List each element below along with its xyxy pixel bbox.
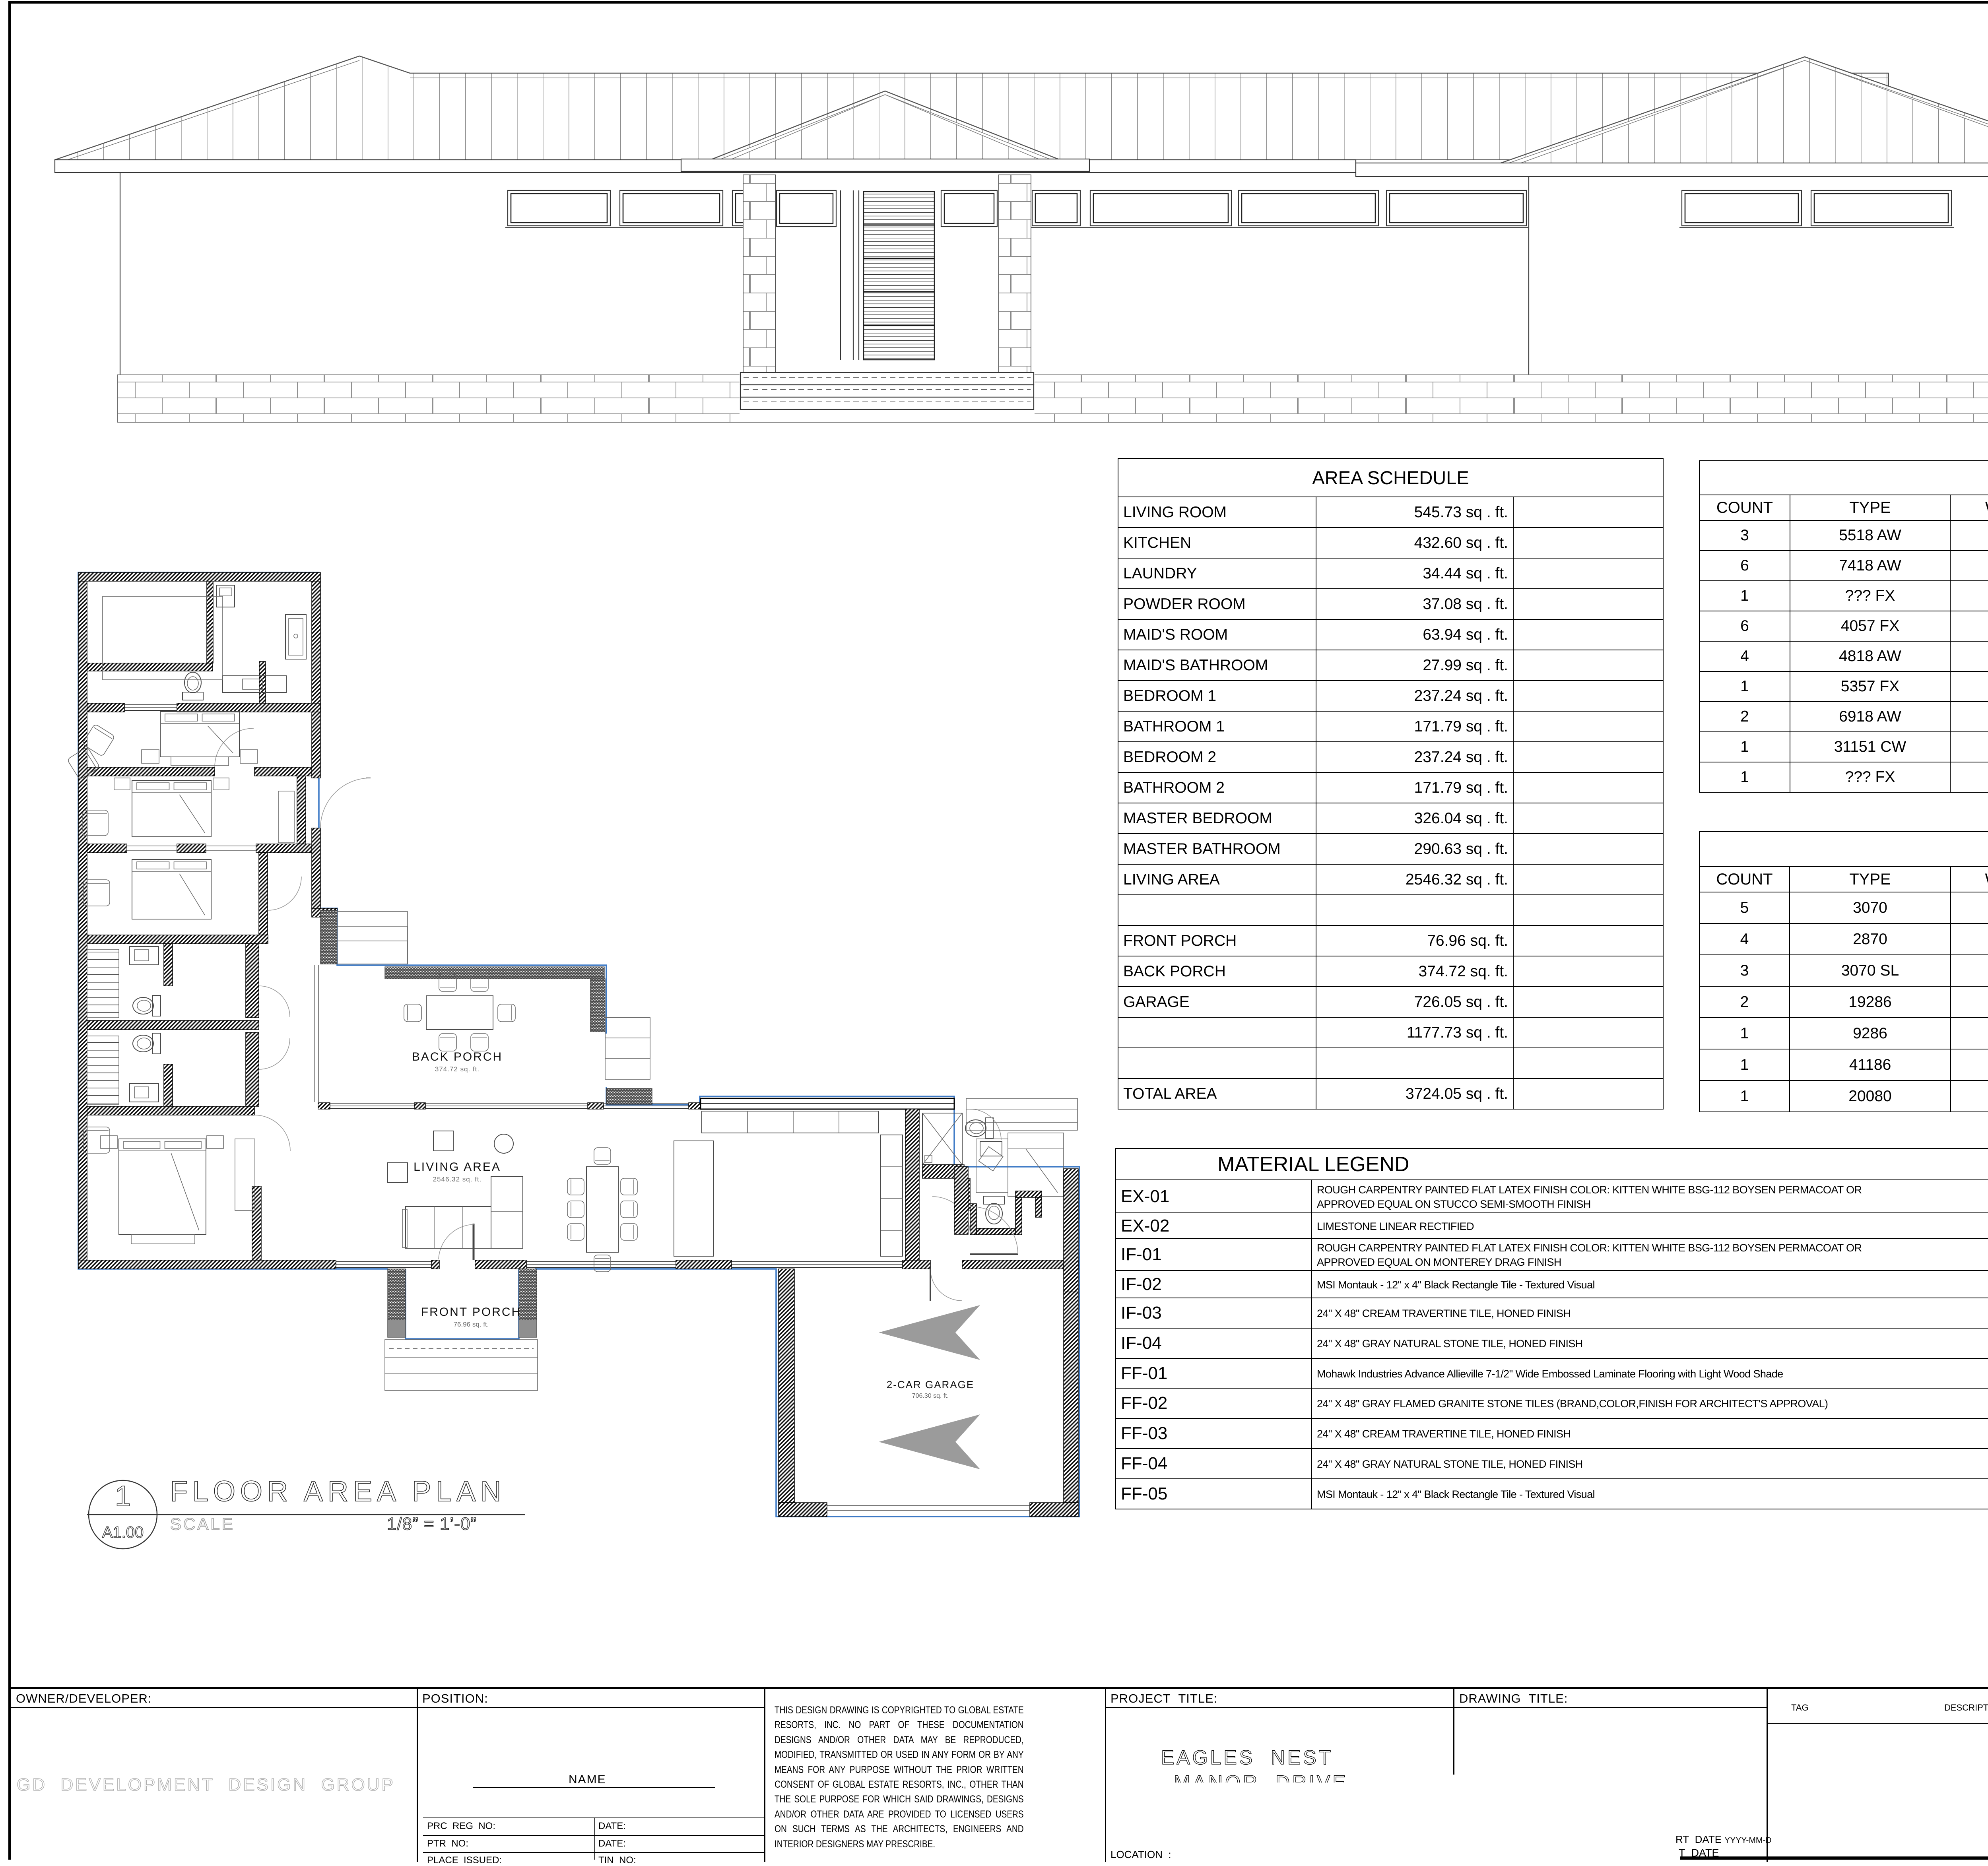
svg-text:706.30 sq. ft.: 706.30 sq. ft.: [912, 1393, 949, 1399]
svg-text:1: 1: [115, 1480, 131, 1512]
svg-text:1/8” = 1’-0”: 1/8” = 1’-0”: [387, 1514, 477, 1534]
svg-text:FLOOR AREA PLAN: FLOOR AREA PLAN: [170, 1476, 506, 1507]
svg-text:LIVING AREA: LIVING AREA: [414, 1160, 501, 1174]
svg-text:2546.32 sq. ft.: 2546.32 sq. ft.: [433, 1175, 482, 1183]
svg-text:A1.00: A1.00: [102, 1524, 144, 1541]
svg-text:76.96 sq. ft.: 76.96 sq. ft.: [454, 1321, 489, 1328]
svg-text:FRONT PORCH: FRONT PORCH: [421, 1305, 521, 1319]
svg-text:BACK PORCH: BACK PORCH: [412, 1050, 503, 1063]
svg-text:374.72 sq. ft.: 374.72 sq. ft.: [435, 1065, 480, 1073]
svg-text:2-CAR GARAGE: 2-CAR GARAGE: [887, 1379, 975, 1391]
svg-text:SCALE: SCALE: [170, 1515, 235, 1533]
